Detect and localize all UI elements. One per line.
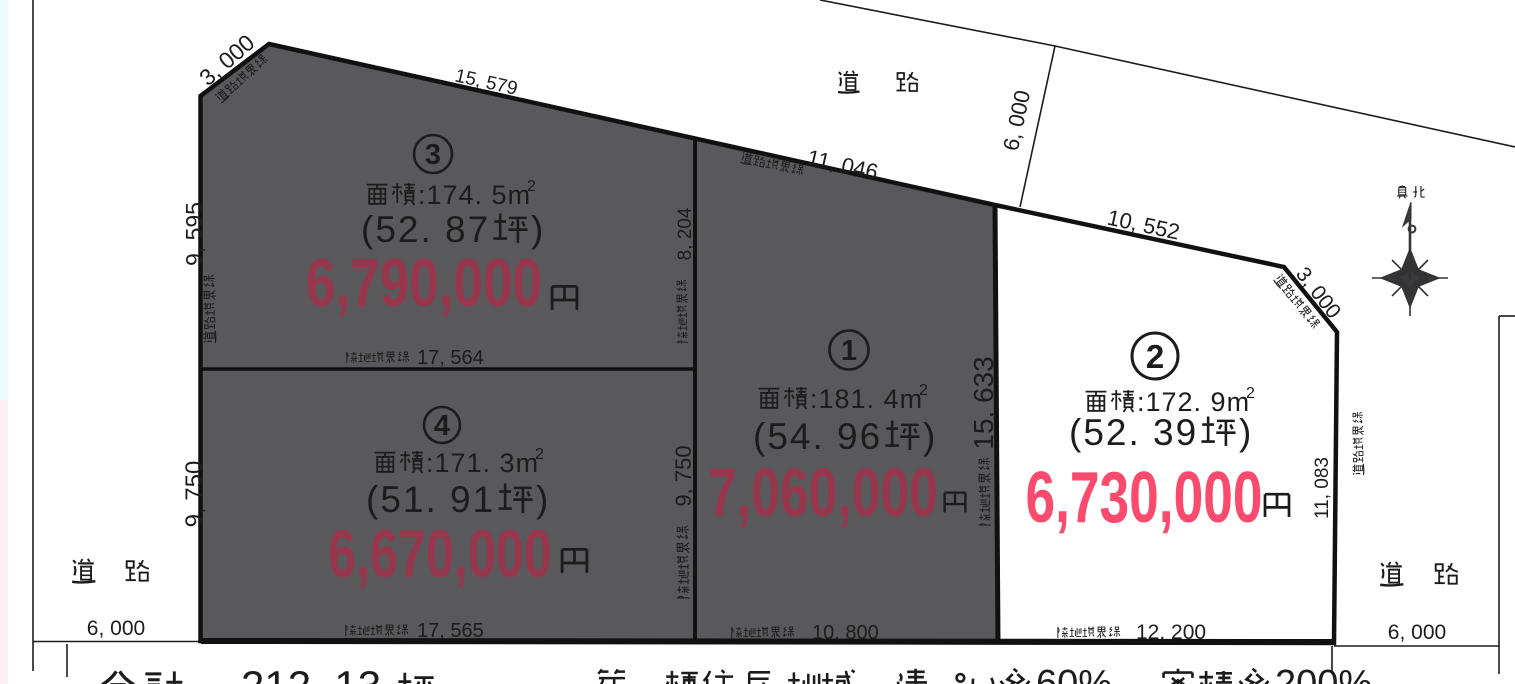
svg-text:4: 4 (434, 410, 450, 442)
svg-text:6, 000: 6, 000 (1388, 621, 1446, 644)
svg-text:6,790,000: 6,790,000 (306, 245, 542, 321)
svg-text:8, 204: 8, 204 (675, 207, 696, 260)
svg-text:(51. 91: (51. 91 (366, 479, 495, 520)
svg-text:(52. 39: (52. 39 (1069, 412, 1198, 453)
svg-text::174. 5m: :174. 5m (418, 180, 531, 210)
svg-text:2: 2 (527, 178, 536, 195)
svg-text:1: 1 (841, 335, 857, 367)
svg-text:2: 2 (919, 382, 928, 399)
svg-text:): ) (536, 479, 548, 520)
svg-text:9, 750: 9, 750 (671, 445, 696, 506)
svg-text:15, 633: 15, 633 (968, 356, 999, 449)
svg-text:12, 200: 12, 200 (1136, 621, 1206, 644)
svg-text:): ) (923, 416, 935, 457)
svg-text:6,730,000: 6,730,000 (1025, 458, 1262, 538)
svg-text:200%: 200% (1275, 663, 1372, 684)
svg-text::171. 3m: :171. 3m (426, 448, 539, 478)
svg-text:17, 564: 17, 564 (417, 347, 484, 369)
svg-text:9, 595: 9, 595 (181, 202, 207, 266)
svg-text:): ) (1239, 412, 1251, 453)
svg-text:17, 565: 17, 565 (417, 620, 484, 642)
svg-text:2: 2 (535, 446, 544, 463)
svg-text:6, 000: 6, 000 (87, 617, 145, 640)
svg-text:2: 2 (1246, 385, 1255, 402)
svg-text:10, 800: 10, 800 (812, 622, 879, 644)
svg-text:2: 2 (1146, 338, 1164, 375)
svg-text:9, 750: 9, 750 (181, 461, 208, 528)
svg-text:6, 000: 6, 000 (998, 88, 1035, 153)
svg-text:11, 083: 11, 083 (1312, 457, 1333, 519)
svg-text:60%: 60% (1036, 663, 1112, 684)
svg-text:7,060,000: 7,060,000 (708, 454, 938, 531)
svg-text:3: 3 (425, 139, 441, 171)
svg-text:6,670,000: 6,670,000 (328, 516, 552, 592)
svg-text::181. 4m: :181. 4m (810, 384, 923, 414)
svg-text:(54. 96: (54. 96 (753, 416, 882, 457)
svg-text:212. 13: 212. 13 (241, 662, 381, 684)
svg-text:3, 000: 3, 000 (1291, 263, 1345, 323)
